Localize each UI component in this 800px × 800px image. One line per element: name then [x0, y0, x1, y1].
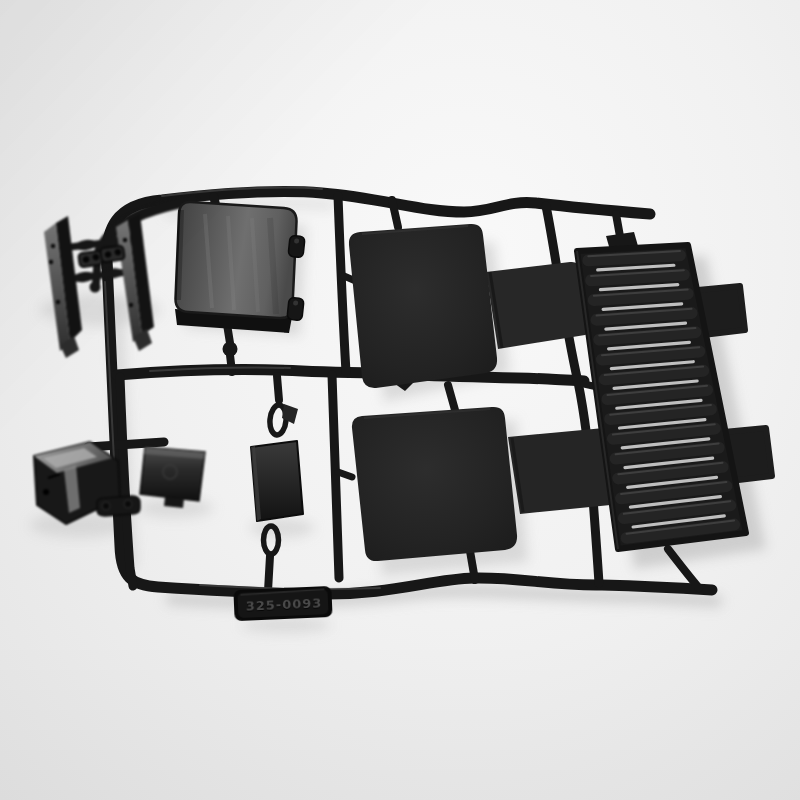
gate-ball: [90, 282, 101, 293]
parts-sprue-photo: 325-0093 325-0093: [0, 0, 800, 800]
side-rail-left: [44, 216, 82, 358]
seat-flap-upper: [486, 262, 592, 349]
storage-box: [175, 202, 305, 333]
chain-bottom-stub: [268, 556, 270, 591]
vertical-runner-4: [332, 375, 339, 578]
flat-plate: [140, 447, 205, 508]
seat2-top-stub: [448, 385, 455, 410]
chain-top-stub: [277, 376, 279, 400]
seat-panel-lower: [352, 407, 517, 561]
clamp-bracket: [97, 496, 140, 516]
seat2-bottom-stub: [470, 551, 475, 580]
vertical-runner-2: [338, 196, 346, 372]
cross-arm: [88, 442, 164, 447]
part-number-tag: 325-0093 325-0093: [233, 586, 332, 621]
photo-background: 325-0093 325-0093: [0, 0, 800, 800]
gate-ball: [223, 342, 238, 357]
box-top-face: [175, 202, 296, 318]
seat-panel-upper: [349, 224, 497, 388]
center-plate: [251, 441, 303, 521]
mid-runner: [117, 370, 584, 381]
seat2-side-stub: [338, 472, 352, 477]
